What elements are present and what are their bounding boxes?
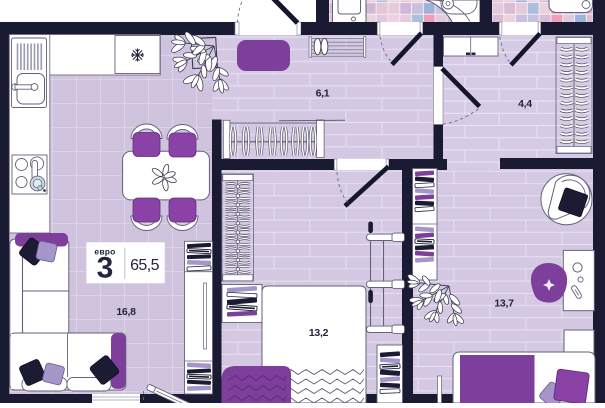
svg-text:65,5: 65,5 bbox=[130, 257, 159, 274]
svg-text:16,8: 16,8 bbox=[116, 306, 136, 318]
svg-text:6,1: 6,1 bbox=[316, 88, 330, 100]
svg-text:13,7: 13,7 bbox=[494, 298, 514, 310]
svg-text:13,2: 13,2 bbox=[309, 327, 329, 339]
svg-text:4,4: 4,4 bbox=[518, 98, 532, 110]
svg-text:3: 3 bbox=[97, 252, 114, 285]
